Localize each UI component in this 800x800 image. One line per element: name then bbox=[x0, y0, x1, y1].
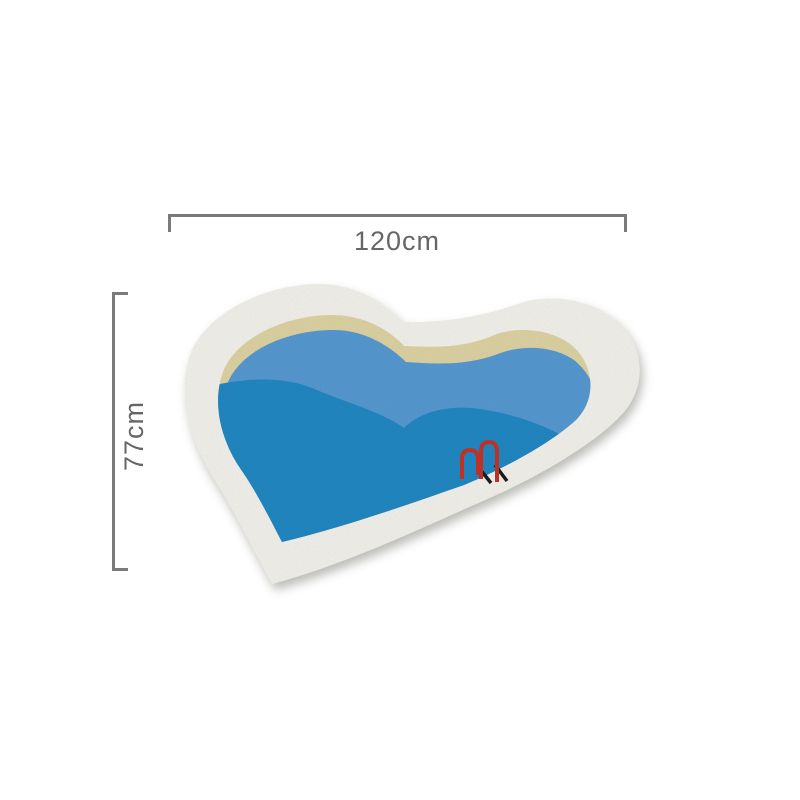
product-page: 120cm 77cm bbox=[0, 0, 800, 800]
rug bbox=[150, 260, 670, 610]
product-image bbox=[0, 0, 800, 800]
rug-texture-overlay bbox=[150, 260, 670, 610]
